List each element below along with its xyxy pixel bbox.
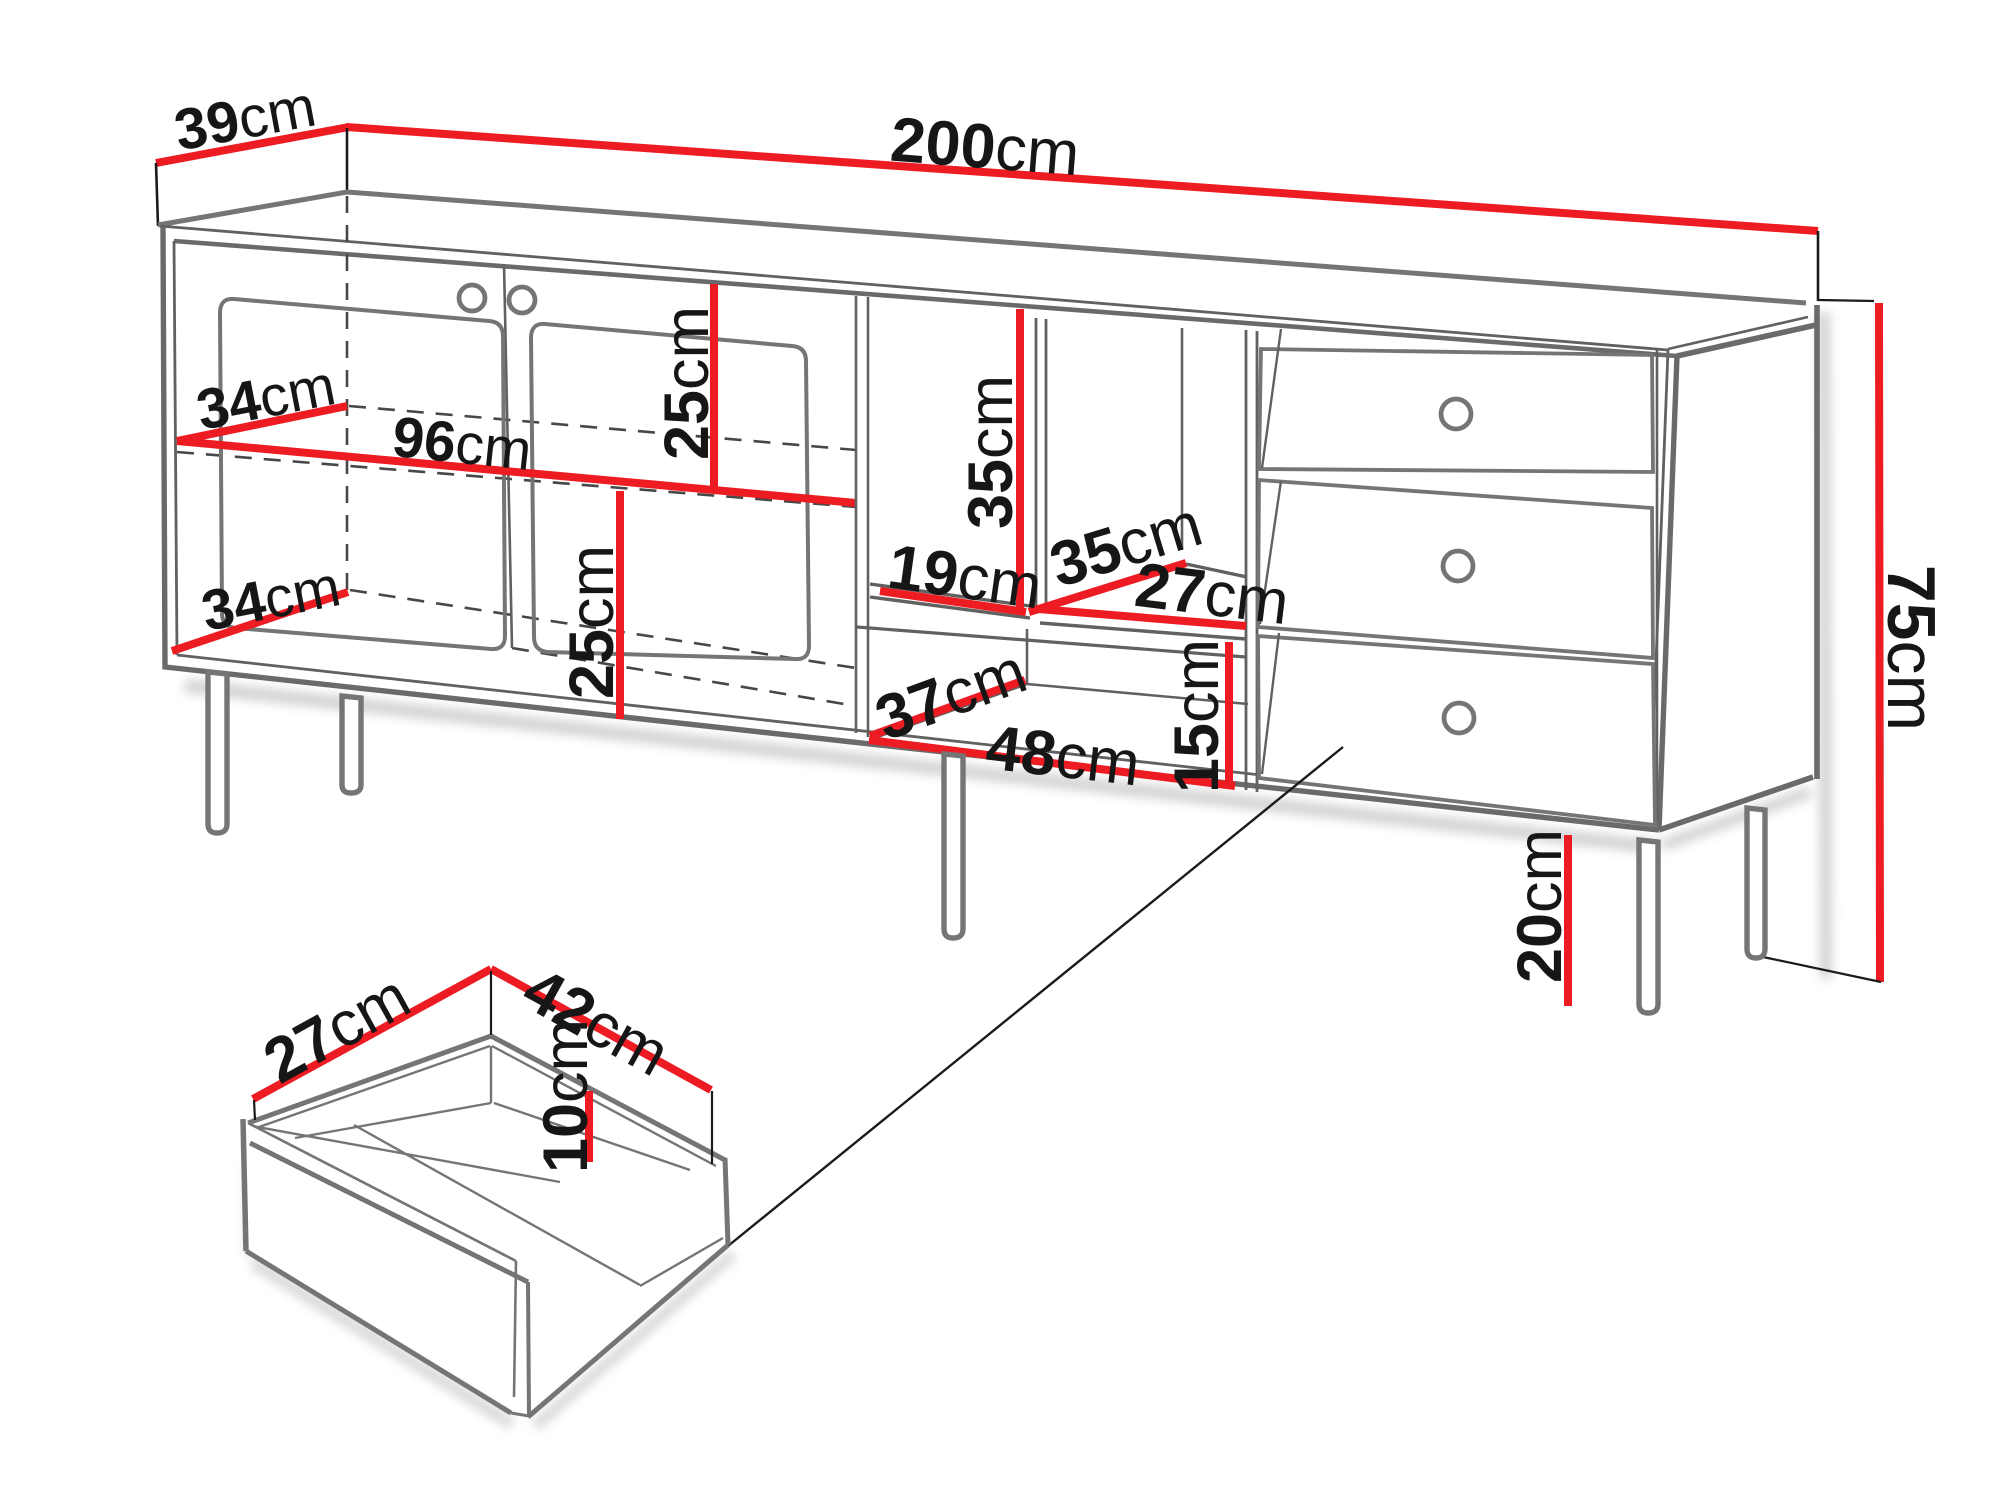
- svg-text:25cm: 25cm: [557, 545, 627, 699]
- svg-text:35cm: 35cm: [956, 375, 1026, 529]
- svg-text:75cm: 75cm: [1873, 565, 1949, 731]
- svg-text:200cm: 200cm: [888, 105, 1082, 190]
- svg-text:15cm: 15cm: [1162, 639, 1232, 793]
- svg-text:10cm: 10cm: [531, 1019, 601, 1173]
- svg-text:25cm: 25cm: [652, 306, 722, 460]
- svg-text:20cm: 20cm: [1505, 829, 1575, 983]
